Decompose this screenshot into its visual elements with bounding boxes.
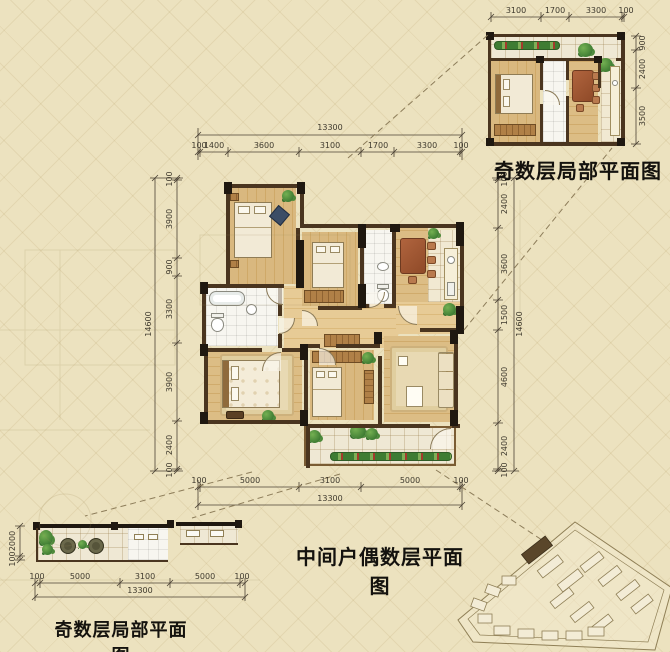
- toilet-tank: [377, 284, 389, 289]
- plant-icon: [362, 352, 374, 364]
- dim-label: 3100: [135, 573, 155, 581]
- dim-label: 1700: [545, 7, 565, 15]
- toilet-icon: [211, 318, 224, 332]
- chair-icon: [592, 96, 600, 104]
- dim-label: 14600: [516, 311, 524, 336]
- dim-label: 14600: [145, 311, 153, 336]
- blanket-fold: [235, 227, 271, 228]
- dim-label: 100: [166, 462, 174, 477]
- chair-icon: [427, 270, 436, 278]
- pillow: [231, 366, 239, 380]
- chair-icon: [576, 104, 584, 112]
- pillow: [231, 387, 239, 401]
- plant-icon: [578, 43, 593, 57]
- pillow: [254, 206, 266, 214]
- nightstand: [230, 193, 239, 201]
- headboard: [496, 75, 501, 113]
- dim-label: 3100: [506, 7, 526, 15]
- dim-label: 1500: [501, 305, 509, 325]
- plant-icon: [443, 303, 456, 316]
- kitchen-sink-icon: [612, 80, 618, 86]
- wardrobe-icon: [304, 290, 344, 303]
- dim-label: 5000: [400, 477, 420, 485]
- bed: [234, 202, 272, 258]
- dim-label: 3300: [166, 299, 174, 319]
- main-plan-title: 中间户偶数层平面图: [292, 541, 468, 599]
- plant-icon: [428, 228, 439, 239]
- pillow: [330, 246, 340, 253]
- dim-label: 2400: [501, 194, 509, 214]
- toilet-tank: [211, 313, 224, 318]
- chair-icon: [60, 538, 76, 554]
- pillow: [238, 206, 250, 214]
- dim-label: 3600: [254, 142, 274, 150]
- dim-label: 5000: [240, 477, 260, 485]
- bench: [226, 411, 244, 419]
- chair-icon: [88, 538, 104, 554]
- pillow: [503, 79, 510, 90]
- flower-planter-icon: [494, 41, 560, 50]
- plant-icon: [366, 428, 378, 440]
- dim-label: 100: [501, 462, 509, 477]
- bed: [312, 367, 342, 417]
- dim-label: 2400: [166, 435, 174, 455]
- dim-label: 3500: [639, 106, 647, 126]
- pillow: [503, 96, 510, 107]
- dim-label: 13300: [317, 124, 342, 132]
- kitchen-sink-icon: [447, 256, 455, 264]
- sink-icon: [246, 304, 257, 315]
- headboard: [223, 361, 229, 407]
- dim-label: 13300: [127, 587, 152, 595]
- fixture-box: [134, 534, 144, 540]
- wardrobe-icon: [494, 124, 536, 136]
- chair-icon: [427, 256, 436, 264]
- dim-label: 5000: [195, 573, 215, 581]
- pillow: [328, 371, 337, 378]
- dim-label: 3600: [501, 254, 509, 274]
- blanket-fold: [313, 263, 343, 264]
- dim-label: 2400: [639, 59, 647, 79]
- coffee-table-icon: [406, 386, 423, 407]
- dining-table-icon: [400, 238, 426, 274]
- dim-label: 900: [639, 35, 647, 50]
- dim-label: 3100: [320, 142, 340, 150]
- dim-label: 100: [453, 142, 468, 150]
- dim-label: 3100: [320, 477, 340, 485]
- dim-label: 4600: [501, 367, 509, 387]
- plant-icon: [42, 544, 53, 555]
- dim-label: 2000: [9, 531, 17, 551]
- partial-room-floor: [128, 528, 168, 560]
- dim-label: 3300: [417, 142, 437, 150]
- flower-planter-icon: [330, 452, 452, 461]
- pillow: [316, 246, 326, 253]
- dim-label: 100: [29, 573, 44, 581]
- bathtub-icon: [209, 291, 245, 306]
- site-key-plan: [458, 522, 670, 650]
- dim-label: 900: [166, 259, 174, 274]
- sink-icon: [377, 262, 389, 271]
- plant-icon: [78, 540, 87, 549]
- dim-label: 100: [234, 573, 249, 581]
- chair-icon: [408, 276, 417, 284]
- dim-label: 3900: [166, 372, 174, 392]
- dim-label: 100: [618, 7, 633, 15]
- dim-label: 2400: [501, 436, 509, 456]
- dim-label: 100: [9, 551, 17, 566]
- bottom-partial-title: 奇数层局部平面图: [46, 616, 196, 652]
- desk: [364, 370, 374, 404]
- top-partial-title: 奇数层局部平面图: [488, 155, 668, 184]
- sofa-icon: [438, 352, 454, 408]
- dining-table-icon: [572, 70, 594, 102]
- fixture-box: [210, 530, 224, 537]
- nightstand: [230, 260, 239, 268]
- dim-label: 3300: [586, 7, 606, 15]
- highlighted-building: [521, 536, 552, 564]
- kitchen-counter: [610, 66, 620, 136]
- bed: [312, 242, 344, 288]
- dim-label: 5000: [70, 573, 90, 581]
- floor-plan-page: 13300 100 1400 3600 3100 1700 3300 100 1…: [0, 0, 670, 652]
- fixture-box: [186, 530, 200, 537]
- dim-label: 100: [453, 477, 468, 485]
- chair-icon: [427, 242, 436, 250]
- side-table: [398, 356, 408, 366]
- dim-label: 1400: [204, 142, 224, 150]
- pillow: [316, 371, 325, 378]
- dim-label: 100: [166, 171, 174, 186]
- plant-icon: [282, 190, 294, 202]
- bed: [495, 74, 533, 114]
- dim-label: 1700: [368, 142, 388, 150]
- dim-label: 13300: [317, 495, 342, 503]
- blanket-fold: [313, 389, 341, 390]
- dim-label: 100: [191, 477, 206, 485]
- fixture-box: [148, 534, 158, 540]
- stove-icon: [447, 282, 455, 296]
- dim-label: 3900: [166, 209, 174, 229]
